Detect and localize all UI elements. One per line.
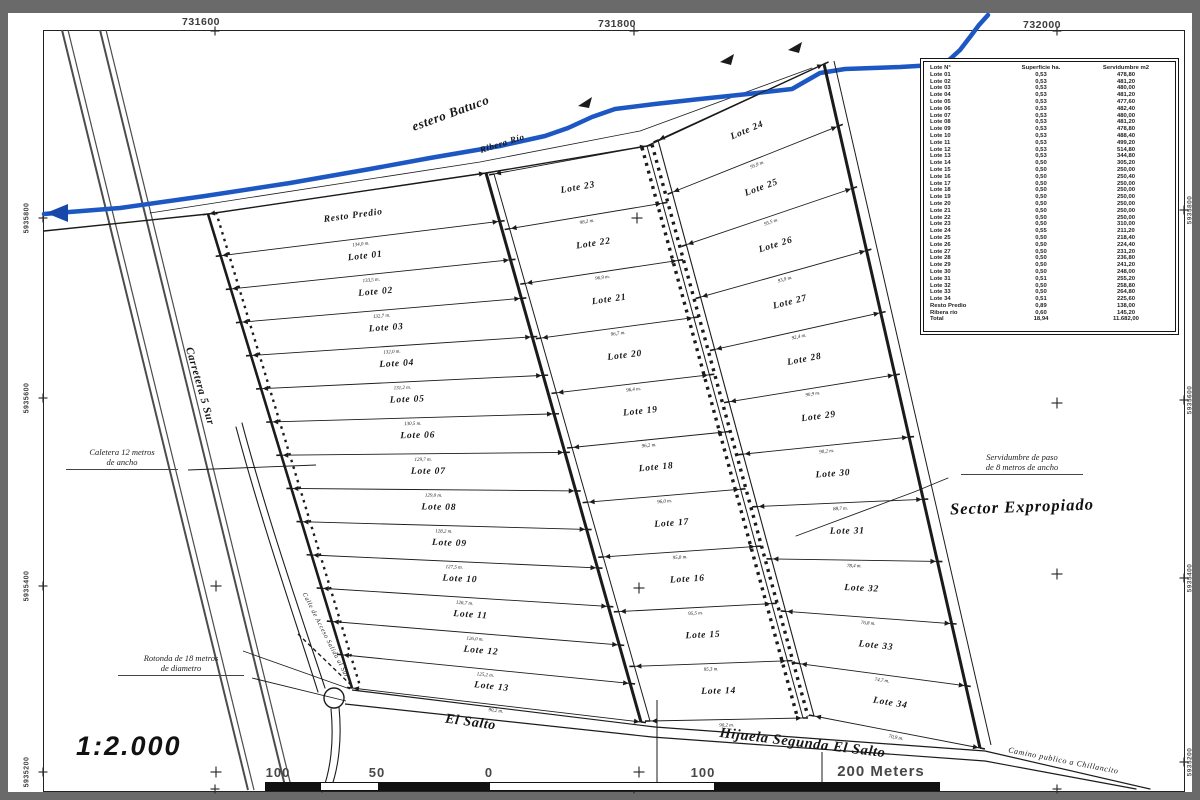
dimension-label: 70,9 m. bbox=[888, 735, 904, 743]
table-cell-value: 488,40 bbox=[1080, 133, 1172, 140]
table-row: Ribera río0,60145,20 bbox=[930, 310, 1172, 317]
table-cell-lot: Lote 05 bbox=[930, 99, 1002, 106]
table-cell-value: Servidumbre m2 bbox=[1080, 65, 1172, 72]
dim-arrow bbox=[702, 293, 708, 298]
dim-arrow bbox=[222, 252, 228, 257]
leader-line bbox=[252, 678, 346, 701]
boundary-tick bbox=[710, 349, 715, 350]
dim-arrow bbox=[651, 718, 657, 723]
lot-boundary bbox=[619, 604, 772, 612]
table-cell-value: 224,40 bbox=[1080, 242, 1172, 249]
col3-west-edge bbox=[658, 140, 814, 716]
table-cell-lot: Lote 12 bbox=[930, 147, 1002, 154]
lot-label: Lote 10 bbox=[441, 573, 477, 585]
table-cell-value: 0,50 bbox=[1002, 215, 1080, 222]
dim-arrow bbox=[759, 504, 765, 509]
table-cell-value: 0,60 bbox=[1002, 310, 1080, 317]
table-row: Lote 100,53488,40 bbox=[930, 133, 1172, 140]
boundary-tick bbox=[511, 259, 516, 260]
dim-arrow bbox=[514, 296, 520, 301]
lot-area-table: Lote N°Superficie ha.Servidumbre m2Lote … bbox=[920, 58, 1179, 335]
table-cell-value: 0,53 bbox=[1002, 72, 1080, 79]
scalebar-segment bbox=[714, 783, 939, 790]
dim-arrow bbox=[536, 373, 542, 378]
table-cell-value: 0,50 bbox=[1002, 262, 1080, 269]
table-cell-lot: Lote 26 bbox=[930, 242, 1002, 249]
table-row: Lote 200,50250,00 bbox=[930, 201, 1172, 208]
grid-northing-label: 5935600 bbox=[24, 383, 31, 414]
dim-arrow bbox=[283, 453, 289, 458]
table-row: Lote 030,53480,00 bbox=[930, 85, 1172, 92]
table-cell-value: 241,20 bbox=[1080, 262, 1172, 269]
table-cell-value: 218,40 bbox=[1080, 235, 1172, 242]
table-cell-value: 480,00 bbox=[1080, 113, 1172, 120]
boundary-tick bbox=[486, 172, 491, 173]
table-row: Lote 040,53481,20 bbox=[930, 92, 1172, 99]
table-cell-value: 0,50 bbox=[1002, 242, 1080, 249]
dim-arrow bbox=[801, 662, 807, 667]
lot-label: Lote 15 bbox=[684, 630, 720, 642]
lot-boundary bbox=[494, 146, 647, 174]
lot-label: Resto Predio bbox=[322, 207, 383, 225]
dim-arrow bbox=[636, 663, 642, 668]
survey-arrow bbox=[720, 54, 734, 65]
table-cell-value: 255,20 bbox=[1080, 276, 1172, 283]
dim-arrow bbox=[503, 258, 509, 263]
table-cell-value: 0,50 bbox=[1002, 187, 1080, 194]
servidumbre-note-line1: Servidumbre de paso bbox=[961, 452, 1083, 462]
table-row: Lote 270,50231,20 bbox=[930, 249, 1172, 256]
dim-arrow bbox=[573, 444, 579, 449]
table-cell-value: 0,50 bbox=[1002, 289, 1080, 296]
table-row: Lote 280,50236,80 bbox=[930, 255, 1172, 262]
table-cell-value: 0,53 bbox=[1002, 106, 1080, 113]
table-cell-lot: Lote 29 bbox=[930, 262, 1002, 269]
boundary-tick bbox=[909, 437, 914, 438]
dimension-label: 132,7 m. bbox=[373, 314, 391, 320]
table-cell-value: 0,51 bbox=[1002, 276, 1080, 283]
dimension-label: 96,4 m. bbox=[626, 387, 641, 394]
table-row: Total18,9411.682,00 bbox=[930, 316, 1172, 323]
dimension-label: 90,9 m. bbox=[805, 391, 820, 398]
dim-arrow bbox=[511, 225, 517, 230]
dim-arrow bbox=[612, 642, 618, 647]
hijuela-label: Hijuela Segunda El Salto bbox=[718, 725, 887, 761]
dim-arrow bbox=[333, 619, 339, 624]
table-cell-lot: Lote 11 bbox=[930, 140, 1002, 147]
boundary-tick bbox=[647, 145, 652, 146]
table-cell-value: 0,50 bbox=[1002, 201, 1080, 208]
dim-arrow bbox=[749, 544, 755, 549]
dim-arrow bbox=[773, 556, 779, 561]
table-cell-value: 0,53 bbox=[1002, 153, 1080, 160]
table-cell-lot: Lote N° bbox=[930, 65, 1002, 72]
table-cell-value: 0,53 bbox=[1002, 119, 1080, 126]
table-cell-value: 0,50 bbox=[1002, 194, 1080, 201]
table-cell-value: 344,80 bbox=[1080, 153, 1172, 160]
highway-line bbox=[62, 30, 248, 790]
table-cell-lot: Lote 10 bbox=[930, 133, 1002, 140]
dim-arrow bbox=[730, 398, 736, 403]
table-cell-lot: Lote 24 bbox=[930, 228, 1002, 235]
dim-arrow bbox=[845, 188, 851, 193]
north-boundary bbox=[44, 64, 824, 231]
table-cell-lot: Lote 15 bbox=[930, 167, 1002, 174]
dim-arrow bbox=[558, 389, 564, 394]
table-cell-value: 0,50 bbox=[1002, 208, 1080, 215]
table-row: Lote 230,50310,00 bbox=[930, 221, 1172, 228]
dimension-label: 134,0 m. bbox=[352, 241, 370, 248]
boundary-tick bbox=[216, 256, 221, 257]
table-row: Lote 010,53478,80 bbox=[930, 72, 1172, 79]
table-row: Lote 090,53478,80 bbox=[930, 126, 1172, 133]
table-row: Lote 310,51255,20 bbox=[930, 276, 1172, 283]
lot-boundary bbox=[634, 661, 787, 667]
dim-arrow bbox=[323, 586, 329, 591]
rotonda-note: Rotonda de 18 metros de diametro bbox=[118, 653, 244, 676]
dim-arrow bbox=[787, 609, 793, 614]
dimension-label: 88,7 m. bbox=[833, 507, 848, 513]
table-row: Lote 290,50241,20 bbox=[930, 262, 1172, 269]
caletera-line bbox=[322, 709, 332, 792]
grid-northing-label: 5935400 bbox=[1187, 564, 1194, 593]
boundary-tick bbox=[682, 245, 687, 247]
grid-northing-label: 5935800 bbox=[1187, 196, 1194, 225]
dimension-label: 90,2 m. bbox=[488, 708, 503, 715]
dim-arrow bbox=[547, 411, 553, 416]
table-cell-lot: Lote 32 bbox=[930, 283, 1002, 290]
boundary-tick bbox=[895, 374, 900, 375]
dim-arrow bbox=[859, 250, 865, 255]
lot-boundary bbox=[715, 313, 881, 350]
table-cell-lot: Lote 20 bbox=[930, 201, 1002, 208]
table-row: Lote 240,55211,20 bbox=[930, 228, 1172, 235]
lot-label: Lote 21 bbox=[590, 292, 627, 307]
table-cell-lot: Lote 16 bbox=[930, 174, 1002, 181]
boundary-tick bbox=[505, 229, 510, 230]
dimension-label: 133,5 m. bbox=[362, 277, 380, 284]
dim-arrow bbox=[252, 352, 258, 357]
elsalto-label: El Salto bbox=[443, 711, 497, 733]
boundary-tick bbox=[725, 431, 730, 432]
lot-label: Lote 14 bbox=[700, 686, 736, 697]
dimension-label: 92,4 m. bbox=[791, 333, 807, 341]
table-cell-lot: Lote 17 bbox=[930, 181, 1002, 188]
scalebar-segment bbox=[266, 783, 321, 790]
dim-arrow bbox=[589, 499, 595, 504]
highway-line bbox=[68, 30, 254, 790]
boundary-tick bbox=[678, 260, 683, 261]
table-cell-lot: Lote 02 bbox=[930, 79, 1002, 86]
highway-line bbox=[106, 30, 292, 790]
scalebar-number: 100 bbox=[691, 765, 716, 780]
scale-bar bbox=[265, 782, 940, 791]
table-row: Lote 250,50218,40 bbox=[930, 235, 1172, 242]
grid-northing-label: 5935200 bbox=[1187, 748, 1194, 777]
table-cell-value: 231,20 bbox=[1080, 249, 1172, 256]
caletera-note-line2: de ancho bbox=[66, 457, 178, 467]
dimension-label: 96,9 m. bbox=[595, 275, 610, 282]
dimension-label: 93,9 m. bbox=[777, 276, 793, 285]
boundary-tick bbox=[226, 289, 231, 290]
dim-arrow bbox=[973, 744, 979, 749]
table-cell-value: 250,00 bbox=[1080, 201, 1172, 208]
table-cell-value: 0,53 bbox=[1002, 113, 1080, 120]
lot-label: Lote 28 bbox=[785, 352, 822, 369]
scale-ratio-label: 1:2.000 bbox=[76, 731, 182, 762]
boundary-tick bbox=[795, 663, 800, 664]
table-cell-value: 138,00 bbox=[1080, 303, 1172, 310]
table-cell-value: 482,40 bbox=[1080, 106, 1172, 113]
boundary-tick bbox=[663, 202, 668, 203]
caletera-note-line1: Caletera 12 metros bbox=[66, 447, 178, 457]
table-cell-value: 0,53 bbox=[1002, 133, 1080, 140]
lot-label: Lote 02 bbox=[357, 286, 394, 299]
table-row: Lote 180,50250,00 bbox=[930, 187, 1172, 194]
dim-arrow bbox=[888, 373, 894, 378]
boundary-tick bbox=[881, 312, 886, 313]
boundary-tick bbox=[696, 297, 701, 298]
table-cell-value: 478,80 bbox=[1080, 126, 1172, 133]
table-cell-lot: Lote 07 bbox=[930, 113, 1002, 120]
table-cell-value: 0,50 bbox=[1002, 249, 1080, 256]
table-cell-value: 250,00 bbox=[1080, 167, 1172, 174]
table-row: Lote 150,50250,00 bbox=[930, 167, 1172, 174]
table-cell-value: 225,60 bbox=[1080, 296, 1172, 303]
dim-arrow bbox=[815, 715, 821, 720]
table-cell-lot: Lote 09 bbox=[930, 126, 1002, 133]
dimension-label: 95,5 m. bbox=[688, 611, 703, 617]
table-row: Lote 210,50250,00 bbox=[930, 208, 1172, 215]
dimension-label: 96,7 m. bbox=[610, 331, 625, 338]
table-cell-value: 258,80 bbox=[1080, 283, 1172, 290]
dim-arrow bbox=[601, 603, 607, 608]
dim-arrow bbox=[273, 419, 279, 424]
dim-arrow bbox=[944, 621, 950, 626]
dim-arrow bbox=[303, 519, 309, 524]
boundary-tick bbox=[536, 338, 541, 339]
table-row: Lote 300,50248,00 bbox=[930, 269, 1172, 276]
table-cell-value: 250,00 bbox=[1080, 208, 1172, 215]
dimension-label: 76,8 m. bbox=[861, 621, 876, 627]
dim-arrow bbox=[293, 486, 299, 491]
highway-line bbox=[100, 30, 286, 790]
river-flow-arrow bbox=[46, 204, 68, 222]
table-cell-lot: Lote 13 bbox=[930, 153, 1002, 160]
dim-arrow bbox=[765, 601, 771, 606]
table-cell-value: 480,00 bbox=[1080, 85, 1172, 92]
dim-arrow bbox=[716, 345, 722, 350]
servidumbre-note-line2: de 8 metros de ancho bbox=[961, 462, 1083, 472]
table-cell-value: 499,20 bbox=[1080, 140, 1172, 147]
dimension-label: 74,7 m. bbox=[874, 678, 889, 685]
table-cell-value: 0,53 bbox=[1002, 140, 1080, 147]
dim-arrow bbox=[527, 280, 533, 285]
lot-label: Lote 29 bbox=[800, 410, 837, 425]
table-cell-value: 0,53 bbox=[1002, 126, 1080, 133]
table-row: Lote 120,53514,80 bbox=[930, 147, 1172, 154]
table-cell-value: 0,51 bbox=[1002, 296, 1080, 303]
table-cell-value: 264,80 bbox=[1080, 289, 1172, 296]
table-cell-value: 0,55 bbox=[1002, 228, 1080, 235]
boundary-tick bbox=[489, 174, 494, 175]
dim-arrow bbox=[873, 312, 879, 317]
table-cell-value: 0,50 bbox=[1002, 255, 1080, 262]
lot-boundary bbox=[701, 251, 867, 298]
lot-label: Lote 27 bbox=[771, 293, 809, 312]
table-cell-value: 0,50 bbox=[1002, 167, 1080, 174]
grid-northing-label: 5935200 bbox=[24, 757, 31, 788]
table-row: Lote 190,50250,00 bbox=[930, 194, 1172, 201]
dim-arrow bbox=[580, 527, 586, 532]
table-cell-value: 250,00 bbox=[1080, 194, 1172, 201]
table-cell-value: 305,20 bbox=[1080, 160, 1172, 167]
table-cell-value: 0,50 bbox=[1002, 174, 1080, 181]
river-label: estero Batuco bbox=[410, 92, 491, 134]
dim-arrow bbox=[796, 716, 802, 721]
lot-label: Lote 17 bbox=[653, 517, 690, 530]
grid-northing-label: 5935800 bbox=[24, 203, 31, 234]
table-cell-value: 211,20 bbox=[1080, 228, 1172, 235]
lot-boundary bbox=[281, 452, 565, 455]
table-cell-value: 514,80 bbox=[1080, 147, 1172, 154]
table-row: Lote 220,50250,00 bbox=[930, 215, 1172, 222]
table-cell-value: 0,50 bbox=[1002, 235, 1080, 242]
scalebar-number: 100 bbox=[266, 765, 291, 780]
dimension-label: 130,5 m. bbox=[404, 422, 422, 427]
table-cell-value: 0,53 bbox=[1002, 99, 1080, 106]
dimension-label: 78,4 m. bbox=[847, 564, 862, 569]
lot-boundary bbox=[672, 126, 838, 192]
dim-arrow bbox=[542, 335, 548, 340]
lot-label: Lote 23 bbox=[559, 180, 596, 196]
boundary-tick bbox=[668, 192, 673, 194]
dimension-label: 125,2 m. bbox=[476, 672, 494, 679]
table-cell-value: 0,53 bbox=[1002, 79, 1080, 86]
lot-boundary bbox=[352, 688, 641, 722]
dim-arrow bbox=[916, 497, 922, 502]
table-cell-lot: Lote 33 bbox=[930, 289, 1002, 296]
dimension-label: 95,8 m. bbox=[673, 555, 688, 561]
lot-label: Lote 03 bbox=[367, 322, 404, 335]
boundary-tick bbox=[694, 317, 699, 318]
boundary-tick bbox=[520, 283, 525, 284]
table-cell-value: 0,53 bbox=[1002, 147, 1080, 154]
lot-label: Lote 25 bbox=[743, 177, 780, 199]
boundary-tick bbox=[203, 214, 208, 215]
boundary-tick bbox=[709, 374, 714, 375]
table-cell-lot: Lote 19 bbox=[930, 194, 1002, 201]
table-cell-value: 145,20 bbox=[1080, 310, 1172, 317]
table-row: Lote 110,53499,20 bbox=[930, 140, 1172, 147]
interior-road bbox=[486, 173, 641, 722]
boundary-tick bbox=[347, 687, 352, 688]
lot-label: Lote 07 bbox=[410, 467, 446, 477]
grid-easting-label: 731600 bbox=[182, 16, 220, 28]
grid-easting-label: 731800 bbox=[598, 18, 636, 30]
boundary-tick bbox=[724, 402, 729, 403]
table-cell-value: 0,50 bbox=[1002, 160, 1080, 167]
table-row: Lote 170,50250,00 bbox=[930, 181, 1172, 188]
lot-label: Lote 20 bbox=[606, 349, 643, 363]
dim-arrow bbox=[959, 682, 965, 687]
lot-boundary bbox=[771, 559, 937, 562]
dim-arrow bbox=[569, 488, 575, 493]
boundary-tick bbox=[809, 715, 814, 716]
grid-northing-label: 5935400 bbox=[24, 571, 31, 602]
table-cell-value: 236,80 bbox=[1080, 255, 1172, 262]
table-cell-lot: Lote 06 bbox=[930, 106, 1002, 113]
table-cell-value: 310,00 bbox=[1080, 221, 1172, 228]
table-row: Lote 080,53481,20 bbox=[930, 119, 1172, 126]
lot-label: Lote 04 bbox=[378, 358, 414, 370]
dim-arrow bbox=[232, 286, 238, 291]
table-cell-value: 0,89 bbox=[1002, 303, 1080, 310]
scalebar-segment bbox=[321, 783, 378, 790]
table-row: Lote 060,53482,40 bbox=[930, 106, 1172, 113]
table-cell-value: 0,53 bbox=[1002, 85, 1080, 92]
lot-boundary bbox=[729, 375, 895, 402]
table-row: Lote 130,53344,80 bbox=[930, 153, 1172, 160]
boundary-tick bbox=[500, 221, 505, 222]
table-cell-lot: Lote 21 bbox=[930, 208, 1002, 215]
table-cell-value: 477,60 bbox=[1080, 99, 1172, 106]
dimension-label: 96,0 m. bbox=[657, 499, 672, 505]
dimension-label: 132,0 m. bbox=[383, 350, 401, 356]
table-cell-lot: Ribera río bbox=[930, 310, 1002, 317]
table-cell-lot: Lote 28 bbox=[930, 255, 1002, 262]
lot-label: Lote 33 bbox=[857, 639, 894, 653]
table-cell-lot: Lote 27 bbox=[930, 249, 1002, 256]
lot-label: Lote 22 bbox=[575, 236, 612, 251]
dimension-label: 126,7 m. bbox=[456, 601, 474, 607]
lot-boundary bbox=[686, 188, 852, 244]
dimension-label: 90,2 m. bbox=[819, 449, 834, 455]
survey-arrow bbox=[578, 97, 592, 108]
boundary-tick bbox=[551, 393, 556, 394]
table-row: Lote 020,53481,20 bbox=[930, 79, 1172, 86]
dim-arrow bbox=[902, 435, 908, 440]
table-cell-lot: Lote 23 bbox=[930, 221, 1002, 228]
lot-label: Lote 32 bbox=[843, 583, 879, 595]
table-cell-lot: Lote 04 bbox=[930, 92, 1002, 99]
lot-boundary bbox=[208, 173, 486, 214]
grid-northing-label: 5935600 bbox=[1187, 386, 1194, 415]
dim-arrow bbox=[687, 316, 693, 321]
lot-label: Lote 16 bbox=[669, 574, 705, 586]
dim-arrow bbox=[930, 559, 936, 564]
dim-arrow bbox=[688, 240, 694, 245]
table-row: Resto Predio0,89138,00 bbox=[930, 303, 1172, 310]
table-cell-lot: Lote 08 bbox=[930, 119, 1002, 126]
table-cell-lot: Lote 03 bbox=[930, 85, 1002, 92]
table-cell-lot: Total bbox=[930, 316, 1002, 323]
table-cell-value: 250,00 bbox=[1080, 181, 1172, 188]
plan-sheet: 134,0 m.133,5 m.132,7 m.132,0 m.131,2 m.… bbox=[0, 0, 1200, 800]
boundary-tick bbox=[980, 748, 985, 749]
table-cell-lot: Resto Predio bbox=[930, 303, 1002, 310]
lot-label: Lote 19 bbox=[622, 405, 659, 419]
table-cell-lot: Lote 34 bbox=[930, 296, 1002, 303]
dim-arrow bbox=[605, 554, 611, 559]
scalebar-number: 0 bbox=[485, 765, 493, 780]
lot-label: Lote 11 bbox=[452, 609, 488, 622]
table-cell-lot: Lote 31 bbox=[930, 276, 1002, 283]
table-cell-value: 0,53 bbox=[1002, 92, 1080, 99]
table-cell-value: 0,50 bbox=[1002, 269, 1080, 276]
table-row: Lote 160,50250,40 bbox=[930, 174, 1172, 181]
boundary-tick bbox=[641, 722, 646, 723]
